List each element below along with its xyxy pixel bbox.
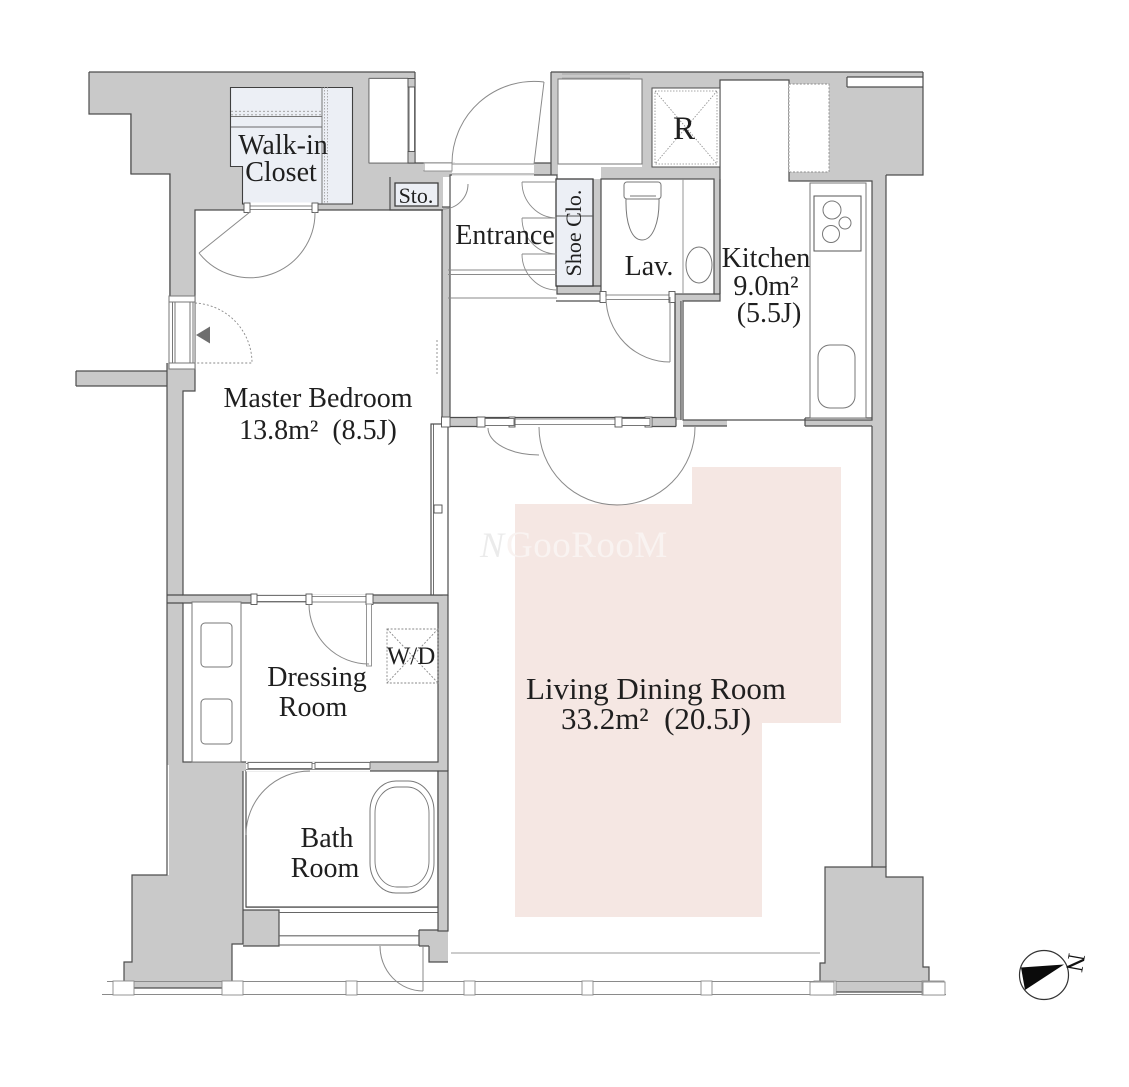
svg-text:(5.5J): (5.5J) [737,298,802,329]
svg-text:W/D: W/D [387,643,436,670]
svg-text:13.8m² (8.5J): 13.8m² (8.5J) [239,415,397,446]
svg-text:Room: Room [291,853,360,884]
svg-text:Master Bedroom: Master Bedroom [224,383,413,414]
svg-text:Entrance: Entrance [455,220,555,251]
svg-text:R: R [673,111,695,147]
svg-text:GooRooM: GooRooM [506,525,668,566]
svg-text:Shoe Clo.: Shoe Clo. [561,190,586,277]
svg-text:N: N [479,525,506,565]
svg-text:33.2m² (20.5J): 33.2m² (20.5J) [561,701,751,736]
svg-text:Sto.: Sto. [399,183,434,208]
svg-text:Dressing: Dressing [267,662,367,693]
svg-text:Kitchen: Kitchen [722,243,811,274]
svg-text:Bath: Bath [301,823,354,854]
svg-text:Closet: Closet [245,157,317,188]
svg-text:Room: Room [279,692,348,723]
svg-text:Lav.: Lav. [625,251,674,282]
